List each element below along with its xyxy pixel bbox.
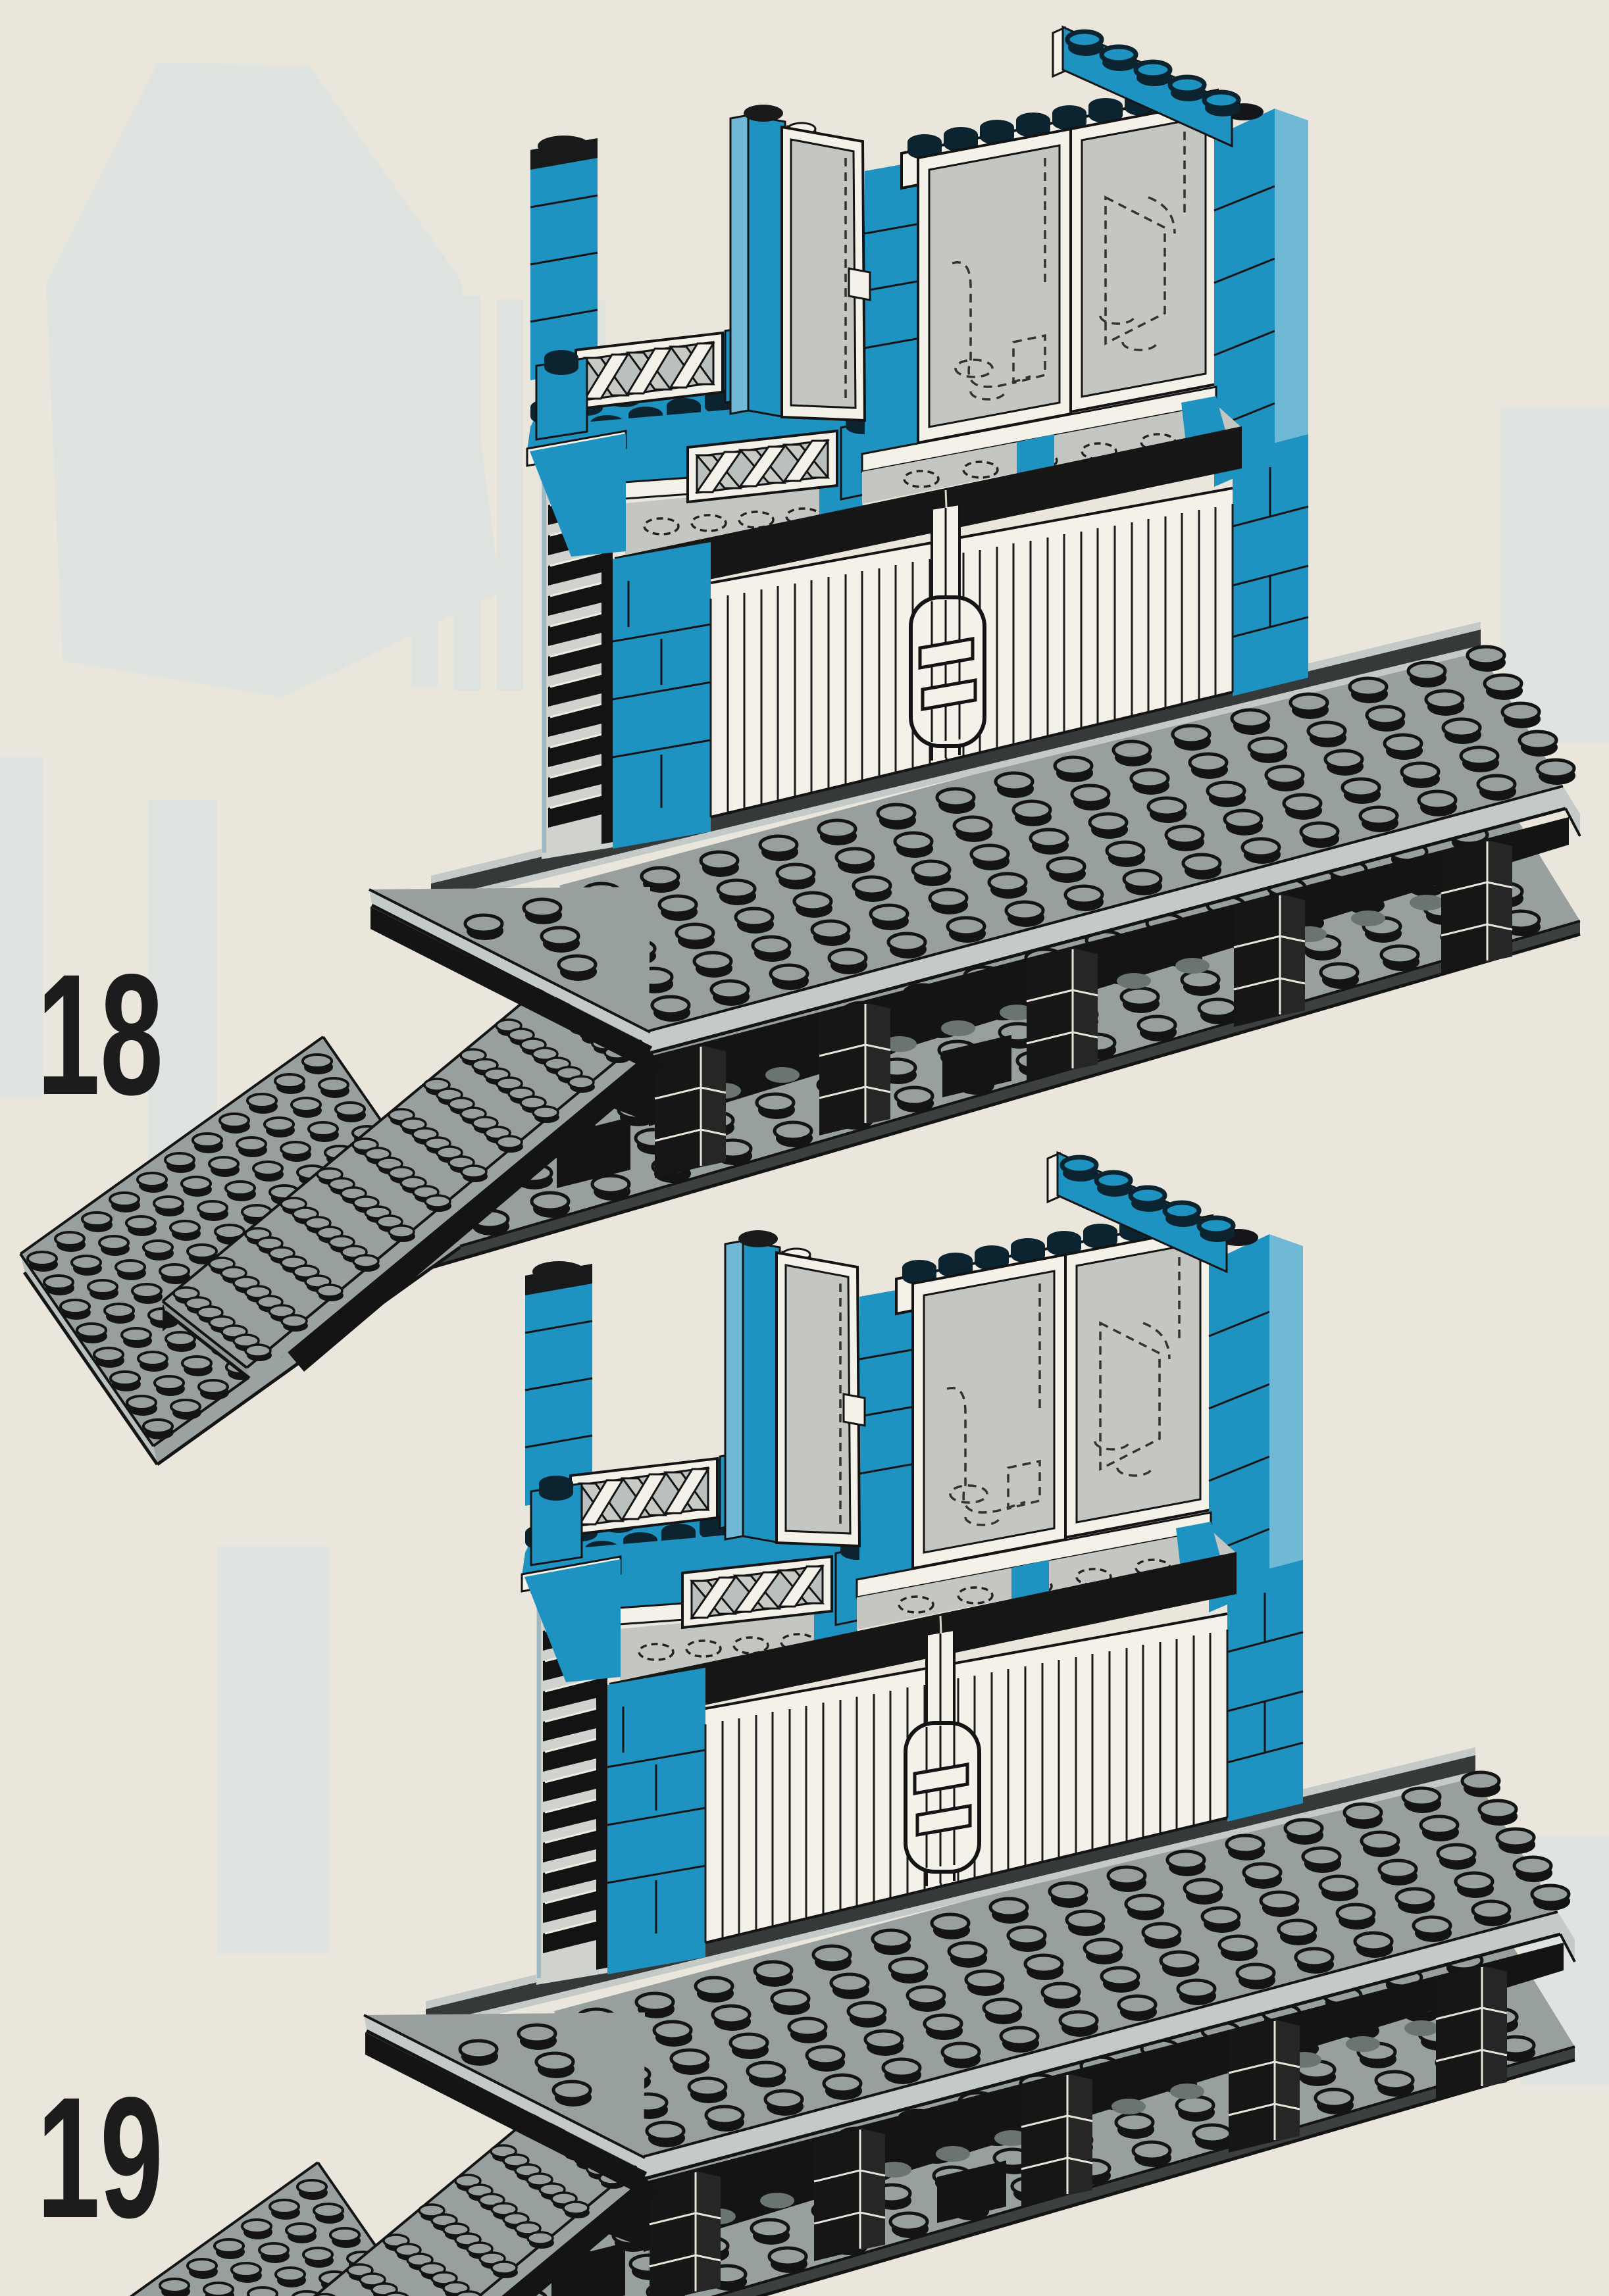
svg-text:19: 19 <box>37 2061 163 2254</box>
svg-text:18: 18 <box>37 938 163 1131</box>
